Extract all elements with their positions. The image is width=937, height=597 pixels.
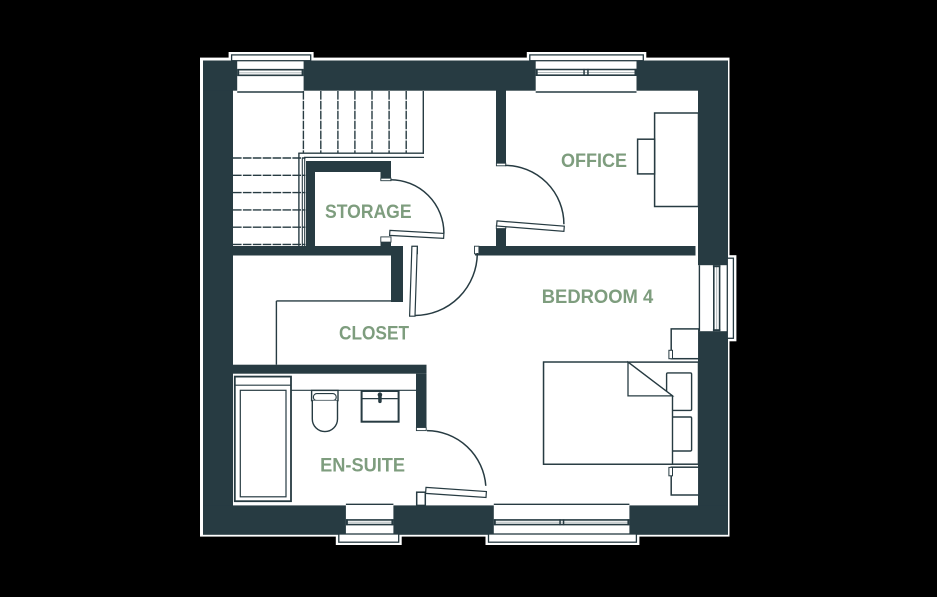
- svg-text:EN-SUITE: EN-SUITE: [320, 456, 405, 477]
- svg-text:BEDROOM 4: BEDROOM 4: [542, 287, 654, 308]
- svg-text:CLOSET: CLOSET: [339, 323, 409, 344]
- svg-text:STORAGE: STORAGE: [325, 202, 412, 223]
- svg-text:OFFICE: OFFICE: [561, 151, 627, 172]
